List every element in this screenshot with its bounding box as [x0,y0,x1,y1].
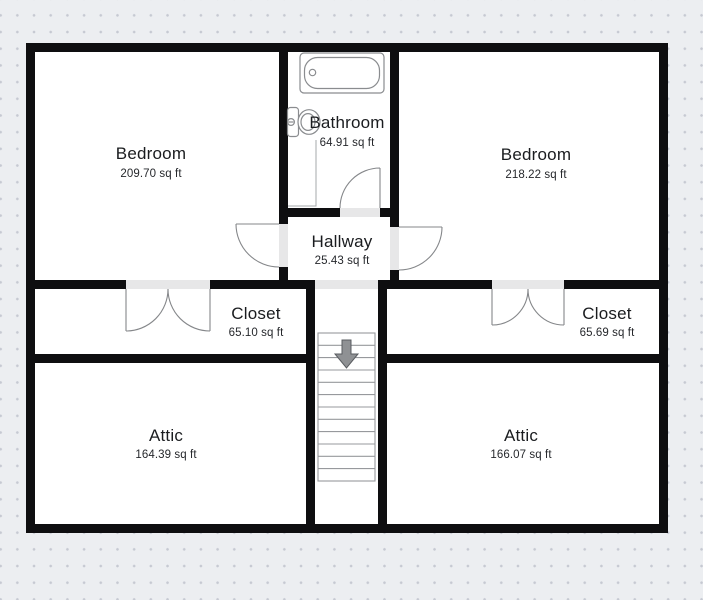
room-label: Closet [582,304,631,323]
room-bedroom-right[interactable]: Bedroom 218.22 sq ft [501,145,571,181]
room-hallway[interactable]: Hallway 25.43 sq ft [312,232,373,267]
room-bathroom[interactable]: Bathroom 64.91 sq ft [309,113,384,149]
room-label: Hallway [312,232,373,251]
opening-stairs [315,280,378,289]
wall-outer-top [26,43,668,52]
wall-bathroom-hallway [279,208,399,217]
room-label: Attic [504,426,538,445]
room-label: Bedroom [501,145,571,164]
room-area: 166.07 sq ft [490,449,552,461]
opening-closet-left-doors [126,280,210,289]
opening-bedroom-left-door [279,224,288,267]
room-label: Attic [149,426,183,445]
wall-stair-left [306,280,315,533]
wall-stair-right [378,280,387,533]
opening-bathroom-door [340,208,380,217]
room-closet-right[interactable]: Closet 65.69 sq ft [580,304,636,339]
bathtub [300,53,384,93]
wall-closet-attic-right [378,354,668,363]
room-area: 65.69 sq ft [580,327,636,339]
room-area: 65.10 sq ft [229,327,285,339]
room-label: Closet [231,304,280,323]
room-area: 64.91 sq ft [320,137,376,149]
room-label: Bathroom [309,113,384,132]
staircase [318,333,375,481]
opening-closet-right-doors [492,280,564,289]
wall-closet-attic-left [26,354,315,363]
room-closet-left[interactable]: Closet 65.10 sq ft [229,304,285,339]
opening-bedroom-right-door [390,227,399,270]
canvas-background: Bedroom 209.70 sq ft Bathroom 64.91 sq f… [0,0,703,600]
room-area: 218.22 sq ft [505,169,567,181]
room-bedroom-left[interactable]: Bedroom 209.70 sq ft [116,144,186,180]
room-area: 164.39 sq ft [135,449,197,461]
floor-plan: Bedroom 209.70 sq ft Bathroom 64.91 sq f… [0,0,703,600]
room-label: Bedroom [116,144,186,163]
wall-outer-bottom [26,524,668,533]
room-area: 25.43 sq ft [315,255,371,267]
room-area: 209.70 sq ft [120,168,182,180]
